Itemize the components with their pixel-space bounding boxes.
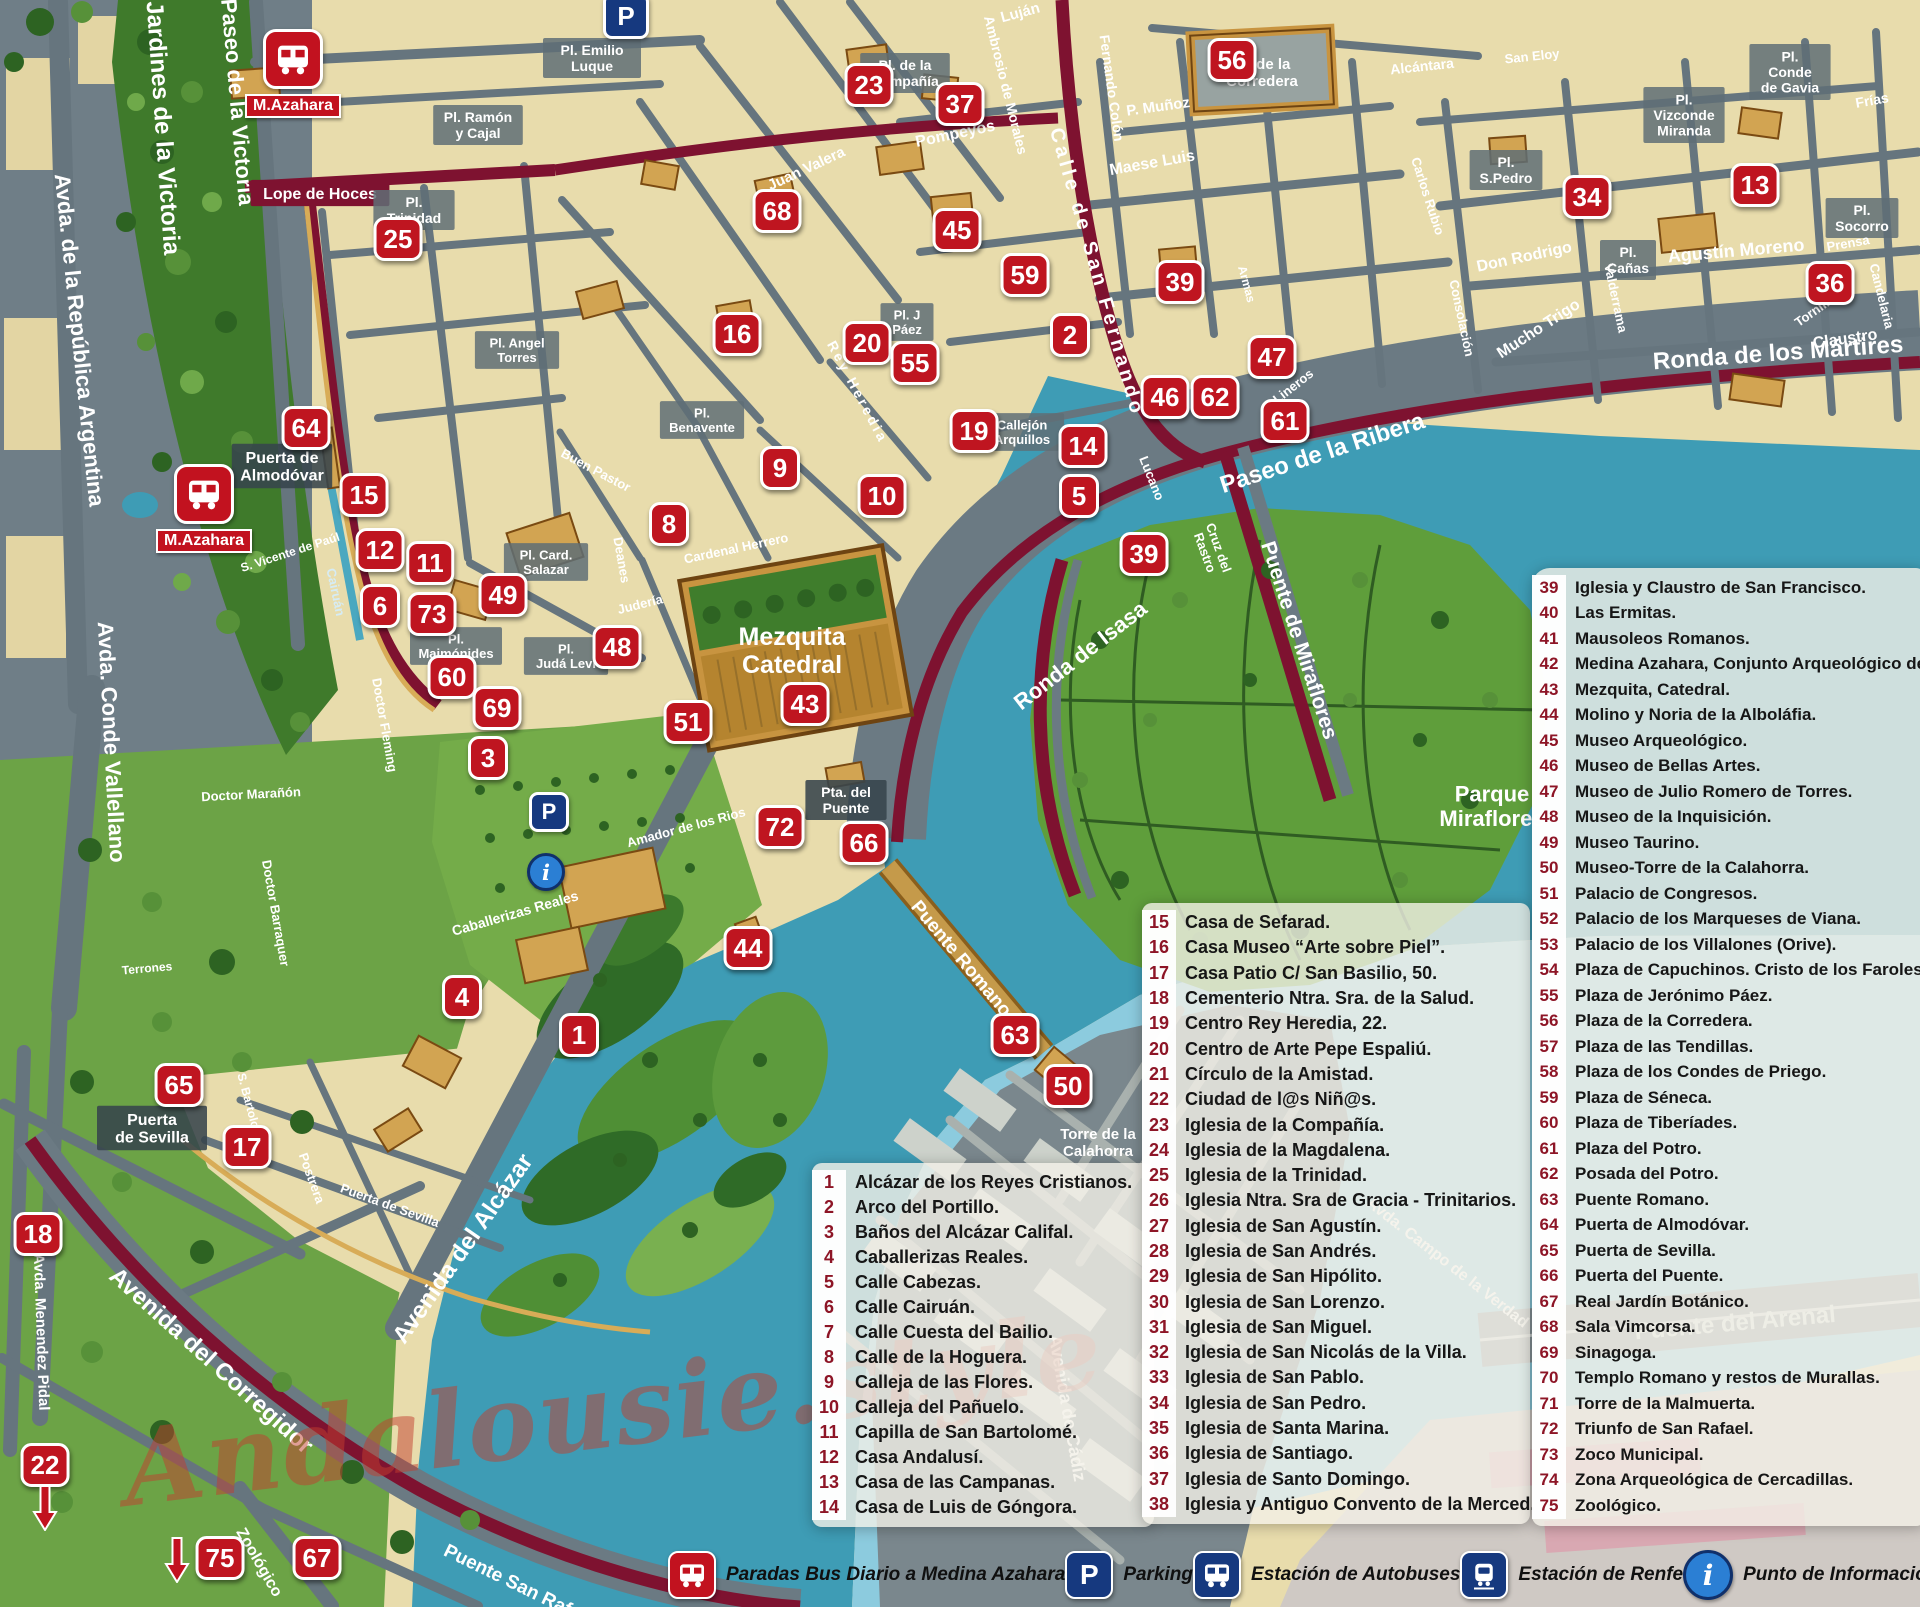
legend-item-label: Calle Cuesta del Bailio.: [846, 1320, 1053, 1345]
legend-item-number: 65: [1532, 1238, 1566, 1264]
legend-item-21: 21 Círculo de la Amistad.: [1142, 1062, 1524, 1087]
legend-item-40: 40 Las Ermitas.: [1532, 601, 1920, 627]
legend-item-label: Iglesia Ntra. Sra de Gracia - Trinitario…: [1176, 1188, 1516, 1213]
street-label: Pl.VizcondeMiranda: [1643, 87, 1724, 143]
legend-item-22: 22 Ciudad de l@s Niñ@s.: [1142, 1087, 1524, 1112]
map-marker-67: 67: [293, 1536, 342, 1580]
svg-text:CallejónArquillos: CallejónArquillos: [994, 417, 1050, 447]
legend-item-label: Sinagoga.: [1566, 1340, 1656, 1366]
legend-item-label: Plaza del Potro.: [1566, 1136, 1702, 1162]
legend-item-18: 18 Cementerio Ntra. Sra. de la Salud.: [1142, 986, 1524, 1011]
legend-item-71: 71 Torre de la Malmuerta.: [1532, 1391, 1920, 1417]
legend-item-number: 14: [812, 1495, 846, 1520]
parking-icon: P: [603, 0, 649, 39]
legend-item-62: 62 Posada del Potro.: [1532, 1162, 1920, 1188]
legend-item-label: Plaza de Jerónimo Páez.: [1566, 983, 1772, 1009]
legend-item-number: 7: [812, 1320, 846, 1345]
legend-item-number: 52: [1532, 907, 1566, 933]
legend-item-57: 57 Plaza de las Tendillas.: [1532, 1034, 1920, 1060]
legend-item-number: 55: [1532, 983, 1566, 1009]
legend-item-68: 68 Sala Vimcorsa.: [1532, 1315, 1920, 1341]
map-marker-61: 61: [1261, 399, 1310, 443]
medina-azahara-bus-stop-icon: M.Azahara: [156, 464, 252, 553]
map-marker-16: 16: [713, 312, 762, 356]
legend-item-label: Iglesia de San Miguel.: [1176, 1315, 1372, 1340]
legend-item-label: Museo Taurino.: [1566, 830, 1699, 856]
legend-item-label: Casa Patio C/ San Basilio, 50.: [1176, 961, 1437, 986]
legend-item-label: Triunfo de San Rafael.: [1566, 1417, 1754, 1443]
svg-text:Pl. Card.Salazar: Pl. Card.Salazar: [520, 547, 573, 577]
map-marker-1: 1: [559, 1013, 599, 1057]
legend-item-label: Casa Andalusí.: [846, 1445, 983, 1470]
map-key-label: Paradas Bus Diario a Medina Azahara: [726, 1564, 1065, 1586]
legend-item-29: 29 Iglesia de San Hipólito.: [1142, 1264, 1524, 1289]
map-marker-64: 64: [282, 406, 331, 450]
map-marker-39: 39: [1156, 260, 1205, 304]
legend-item-number: 45: [1532, 728, 1566, 754]
legend-item-label: Las Ermitas.: [1566, 601, 1676, 627]
tourist-info-icon: i: [527, 853, 565, 891]
legend-item-label: Zona Arqueológica de Cercadillas.: [1566, 1468, 1853, 1494]
legend-item-label: Iglesia de Santiago.: [1176, 1441, 1353, 1466]
legend-item-label: Calle Cabezas.: [846, 1270, 981, 1295]
legend-item-label: Calleja del Pañuelo.: [846, 1395, 1024, 1420]
legend-item-label: Museo de Bellas Artes.: [1566, 754, 1761, 780]
bus-icon: [263, 29, 323, 89]
legend-item-label: Casa de Sefarad.: [1176, 910, 1330, 935]
street-label: Pl.Condede Gavia: [1749, 44, 1830, 100]
legend-item-label: Iglesia de San Agustín.: [1176, 1214, 1381, 1239]
legend-item-number: 4: [812, 1245, 846, 1270]
legend-item-number: 72: [1532, 1417, 1566, 1443]
map-marker-75: 75: [196, 1536, 245, 1580]
map-marker-69: 69: [473, 686, 522, 730]
map-marker-56: 56: [1208, 38, 1257, 82]
legend-item-label: Museo-Torre de la Calahorra.: [1566, 856, 1809, 882]
legend-item-number: 59: [1532, 1085, 1566, 1111]
legend-item-label: Casa de las Campanas.: [846, 1470, 1055, 1495]
legend-item-45: 45 Museo Arqueológico.: [1532, 728, 1920, 754]
street-label: MezquitaCatedral: [739, 623, 847, 679]
legend-item-label: Plaza de Séneca.: [1566, 1085, 1712, 1111]
legend-item-label: Posada del Potro.: [1566, 1162, 1719, 1188]
legend-item-37: 37 Iglesia de Santo Domingo.: [1142, 1467, 1524, 1492]
legend-item-72: 72 Triunfo de San Rafael.: [1532, 1417, 1920, 1443]
map-marker-66: 66: [840, 821, 889, 865]
legend-item-number: 34: [1142, 1391, 1176, 1416]
legend-item-28: 28 Iglesia de San Andrés.: [1142, 1239, 1524, 1264]
map-marker-59: 59: [1001, 253, 1050, 297]
legend-item-20: 20 Centro de Arte Pepe Espaliú.: [1142, 1036, 1524, 1061]
map-marker-8: 8: [649, 502, 689, 546]
legend-item-number: 42: [1532, 652, 1566, 678]
svg-text:MezquitaCatedral: MezquitaCatedral: [739, 623, 847, 679]
legend-item-label: Museo de Julio Romero de Torres.: [1566, 779, 1852, 805]
legend-item-number: 46: [1532, 754, 1566, 780]
legend-item-label: Plaza de Tiberíades.: [1566, 1111, 1737, 1137]
legend-item-14: 14 Casa de Luis de Góngora.: [812, 1495, 1148, 1520]
svg-text:Lope de Hoces: Lope de Hoces: [263, 186, 377, 203]
legend-item-label: Torre de la Malmuerta.: [1566, 1391, 1755, 1417]
legend-item-number: 31: [1142, 1315, 1176, 1340]
legend-item-label: Iglesia de San Pedro.: [1176, 1391, 1366, 1416]
map-key-label: Punto de Información Turística: [1743, 1564, 1920, 1586]
legend-item-number: 28: [1142, 1239, 1176, 1264]
map-marker-10: 10: [858, 474, 907, 518]
legend-panel-1: 1 Alcázar de los Reyes Cristianos.2 Arco…: [812, 1163, 1154, 1527]
legend-item-label: Calle Cairuán.: [846, 1295, 975, 1320]
legend-item-number: 63: [1532, 1187, 1566, 1213]
medina-azahara-bus-stop-icon: M.Azahara: [245, 29, 341, 118]
legend-item-12: 12 Casa Andalusí.: [812, 1445, 1148, 1470]
legend-item-34: 34 Iglesia de San Pedro.: [1142, 1391, 1524, 1416]
legend-item-label: Medina Azahara, Conjunto Arqueológico de…: [1566, 652, 1920, 678]
legend-item-label: Mezquita, Catedral.: [1566, 677, 1730, 703]
legend-item-label: Palacio de los Marqueses de Viana.: [1566, 907, 1861, 933]
map-marker-65: 65: [155, 1063, 204, 1107]
legend-item-31: 31 Iglesia de San Miguel.: [1142, 1315, 1524, 1340]
legend-item-label: Palacio de Congresos.: [1566, 881, 1757, 907]
legend-item-label: Templo Romano y restos de Murallas.: [1566, 1366, 1880, 1392]
legend-item-number: 3: [812, 1220, 846, 1245]
street-label: Lope de Hoces: [251, 180, 390, 206]
legend-item-number: 36: [1142, 1441, 1176, 1466]
legend-item-number: 47: [1532, 779, 1566, 805]
legend-item-number: 66: [1532, 1264, 1566, 1290]
legend-item-number: 51: [1532, 881, 1566, 907]
legend-item-number: 13: [812, 1470, 846, 1495]
map-marker-55: 55: [891, 341, 940, 385]
map-key-item: PParking: [1065, 1551, 1193, 1599]
map-marker-72: 72: [756, 805, 805, 849]
map-marker-19: 19: [950, 409, 999, 453]
legend-item-label: Iglesia y Claustro de San Francisco.: [1566, 575, 1866, 601]
legend-item-number: 23: [1142, 1112, 1176, 1137]
legend-item-label: Real Jardín Botánico.: [1566, 1289, 1749, 1315]
map-marker-22: 22: [21, 1443, 70, 1487]
map-marker-51: 51: [664, 700, 713, 744]
legend-item-label: Iglesia de San Hipólito.: [1176, 1264, 1382, 1289]
legend-item-number: 8: [812, 1345, 846, 1370]
legend-item-label: Baños del Alcázar Califal.: [846, 1220, 1073, 1245]
legend-item-32: 32 Iglesia de San Nicolás de la Villa.: [1142, 1340, 1524, 1365]
legend-item-number: 24: [1142, 1138, 1176, 1163]
map-marker-63: 63: [991, 1013, 1040, 1057]
legend-item-number: 20: [1142, 1036, 1176, 1061]
map-marker-12: 12: [356, 528, 405, 572]
legend-item-label: Plaza de las Tendillas.: [1566, 1034, 1753, 1060]
legend-item-label: Puerta de Sevilla.: [1566, 1238, 1716, 1264]
legend-item-label: Ciudad de l@s Niñ@s.: [1176, 1087, 1376, 1112]
legend-item-75: 75 Zoológico.: [1532, 1493, 1920, 1519]
legend-item-7: 7 Calle Cuesta del Bailio.: [812, 1320, 1148, 1345]
svg-text:Pl. JPáez: Pl. JPáez: [892, 307, 922, 337]
legend-panel-3: 39 Iglesia y Claustro de San Francisco.4…: [1532, 568, 1920, 1526]
legend-item-number: 32: [1142, 1340, 1176, 1365]
legend-item-label: Molino y Noria de la Alboláfia.: [1566, 703, 1816, 729]
map-marker-14: 14: [1059, 424, 1108, 468]
legend-item-3: 3 Baños del Alcázar Califal.: [812, 1220, 1148, 1245]
legend-item-9: 9 Calleja de las Flores.: [812, 1370, 1148, 1395]
legend-item-label: Mausoleos Romanos.: [1566, 626, 1750, 652]
legend-item-number: 15: [1142, 910, 1176, 935]
map-key-item: iPunto de Información Turística: [1683, 1550, 1920, 1600]
legend-item-number: 35: [1142, 1416, 1176, 1441]
legend-item-label: Iglesia de la Magdalena.: [1176, 1138, 1390, 1163]
legend-item-number: 43: [1532, 677, 1566, 703]
map-marker-45: 45: [933, 208, 982, 252]
map-marker-47: 47: [1248, 335, 1297, 379]
map-marker-68: 68: [753, 189, 802, 233]
map-marker-25: 25: [374, 217, 423, 261]
legend-item-label: Centro Rey Heredia, 22.: [1176, 1011, 1387, 1036]
legend-item-39: 39 Iglesia y Claustro de San Francisco.: [1532, 575, 1920, 601]
legend-item-33: 33 Iglesia de San Pablo.: [1142, 1365, 1524, 1390]
bus-stop-label: M.Azahara: [245, 94, 341, 118]
map-marker-13: 13: [1731, 163, 1780, 207]
legend-item-23: 23 Iglesia de la Compañía.: [1142, 1112, 1524, 1137]
legend-item-24: 24 Iglesia de la Magdalena.: [1142, 1138, 1524, 1163]
legend-item-number: 11: [812, 1420, 846, 1445]
legend-item-number: 5: [812, 1270, 846, 1295]
legend-item-6: 6 Calle Cairuán.: [812, 1295, 1148, 1320]
legend-item-30: 30 Iglesia de San Lorenzo.: [1142, 1289, 1524, 1314]
legend-item-60: 60 Plaza de Tiberíades.: [1532, 1111, 1920, 1137]
map-marker-44: 44: [724, 926, 773, 970]
legend-item-36: 36 Iglesia de Santiago.: [1142, 1441, 1524, 1466]
legend-item-label: Iglesia de la Compañía.: [1176, 1112, 1384, 1137]
legend-item-44: 44 Molino y Noria de la Alboláfia.: [1532, 703, 1920, 729]
legend-item-13: 13 Casa de las Campanas.: [812, 1470, 1148, 1495]
legend-item-label: Calle de la Hoguera.: [846, 1345, 1027, 1370]
medina-azahara-bus-icon: [668, 1551, 716, 1599]
legend-item-19: 19 Centro Rey Heredia, 22.: [1142, 1011, 1524, 1036]
legend-item-25: 25 Iglesia de la Trinidad.: [1142, 1163, 1524, 1188]
legend-item-label: Iglesia de San Nicolás de la Villa.: [1176, 1340, 1467, 1365]
map-marker-17: 17: [223, 1125, 272, 1169]
legend-item-label: Palacio de los Villalones (Orive).: [1566, 932, 1836, 958]
legend-item-59: 59 Plaza de Séneca.: [1532, 1085, 1920, 1111]
map-marker-23: 23: [845, 63, 894, 107]
map-marker-43: 43: [781, 682, 830, 726]
bus-stop-label: M.Azahara: [156, 529, 252, 553]
legend-item-label: Iglesia de San Lorenzo.: [1176, 1289, 1385, 1314]
legend-item-label: Iglesia de San Pablo.: [1176, 1365, 1364, 1390]
map-marker-48: 48: [593, 625, 642, 669]
legend-item-label: Plaza de Capuchinos. Cristo de los Farol…: [1566, 958, 1920, 984]
legend-item-label: Capilla de San Bartolomé.: [846, 1420, 1077, 1445]
legend-item-label: Casa de Luis de Góngora.: [846, 1495, 1077, 1520]
legend-item-50: 50 Museo-Torre de la Calahorra.: [1532, 856, 1920, 882]
legend-item-number: 26: [1142, 1188, 1176, 1213]
legend-item-number: 21: [1142, 1062, 1176, 1087]
legend-item-number: 56: [1532, 1009, 1566, 1035]
legend-item-number: 39: [1532, 575, 1566, 601]
legend-item-number: 64: [1532, 1213, 1566, 1239]
cordoba-tourist-map: Avda. de la República ArgentinaJardines …: [0, 0, 1920, 1607]
legend-item-number: 62: [1532, 1162, 1566, 1188]
map-marker-5: 5: [1059, 474, 1099, 518]
legend-item-label: Zoológico.: [1566, 1493, 1661, 1519]
bus-icon: [174, 464, 234, 524]
legend-item-16: 16 Casa Museo “Arte sobre Piel”.: [1142, 935, 1524, 960]
legend-item-label: Plaza de la Corredera.: [1566, 1009, 1753, 1035]
legend-item-number: 1: [812, 1170, 846, 1195]
legend-item-number: 58: [1532, 1060, 1566, 1086]
legend-item-number: 19: [1142, 1011, 1176, 1036]
red-arrow-icon: [32, 1485, 58, 1531]
legend-item-number: 29: [1142, 1264, 1176, 1289]
legend-item-69: 69 Sinagoga.: [1532, 1340, 1920, 1366]
legend-item-number: 73: [1532, 1442, 1566, 1468]
legend-panel-2: 15 Casa de Sefarad.16 Casa Museo “Arte s…: [1142, 903, 1530, 1524]
legend-item-73: 73 Zoco Municipal.: [1532, 1442, 1920, 1468]
legend-item-number: 68: [1532, 1315, 1566, 1341]
bus-station-icon: [1193, 1551, 1241, 1599]
legend-item-number: 10: [812, 1395, 846, 1420]
map-marker-6: 6: [360, 584, 400, 628]
map-marker-62: 62: [1191, 375, 1240, 419]
street-label: Pl. EmilioLuque: [543, 38, 641, 78]
map-marker-50: 50: [1044, 1064, 1093, 1108]
legend-item-2: 2 Arco del Portillo.: [812, 1195, 1148, 1220]
legend-item-label: Alcázar de los Reyes Cristianos.: [846, 1170, 1132, 1195]
svg-text:Puerta deAlmodóvar: Puerta deAlmodóvar: [240, 450, 324, 485]
legend-item-number: 48: [1532, 805, 1566, 831]
map-key-item: Estación de Renfe: [1460, 1551, 1683, 1599]
map-marker-20: 20: [843, 321, 892, 365]
map-marker-34: 34: [1563, 175, 1612, 219]
legend-item-label: Cementerio Ntra. Sra. de la Salud.: [1176, 986, 1474, 1011]
legend-item-number: 40: [1532, 601, 1566, 627]
legend-item-48: 48 Museo de la Inquisición.: [1532, 805, 1920, 831]
red-arrow-icon: [164, 1537, 190, 1583]
legend-item-56: 56 Plaza de la Corredera.: [1532, 1009, 1920, 1035]
map-marker-49: 49: [479, 573, 528, 617]
legend-item-65: 65 Puerta de Sevilla.: [1532, 1238, 1920, 1264]
street-label: Pta. delPuente: [805, 780, 886, 820]
legend-item-number: 67: [1532, 1289, 1566, 1315]
map-marker-4: 4: [442, 975, 482, 1019]
street-label: Pl.Socorro: [1826, 198, 1899, 238]
map-marker-2: 2: [1050, 313, 1090, 357]
legend-item-1: 1 Alcázar de los Reyes Cristianos.: [812, 1170, 1148, 1195]
street-label: Puertade Sevilla: [97, 1106, 207, 1150]
legend-item-label: Puerta del Puente.: [1566, 1264, 1723, 1290]
legend-item-53: 53 Palacio de los Villalones (Orive).: [1532, 932, 1920, 958]
legend-item-label: Iglesia de Santo Domingo.: [1176, 1467, 1410, 1492]
map-key-item: Estación de Autobuses: [1193, 1551, 1460, 1599]
legend-item-number: 25: [1142, 1163, 1176, 1188]
map-marker-3: 3: [468, 736, 508, 780]
legend-item-17: 17 Casa Patio C/ San Basilio, 50.: [1142, 961, 1524, 986]
legend-item-number: 54: [1532, 958, 1566, 984]
parking-icon: P: [529, 792, 569, 832]
svg-text:Torre de laCalahorra: Torre de laCalahorra: [1060, 1126, 1136, 1160]
legend-item-number: 44: [1532, 703, 1566, 729]
legend-item-15: 15 Casa de Sefarad.: [1142, 910, 1524, 935]
legend-item-4: 4 Caballerizas Reales.: [812, 1245, 1148, 1270]
legend-item-label: Zoco Municipal.: [1566, 1442, 1703, 1468]
svg-text:Pl. AngelTorres: Pl. AngelTorres: [489, 335, 544, 365]
legend-item-58: 58 Plaza de los Condes de Priego.: [1532, 1060, 1920, 1086]
legend-item-number: 74: [1532, 1468, 1566, 1494]
legend-item-number: 18: [1142, 986, 1176, 1011]
legend-item-label: Puerta de Almodóvar.: [1566, 1213, 1749, 1239]
legend-item-label: Puente Romano.: [1566, 1187, 1709, 1213]
map-key-label: Parking: [1123, 1564, 1193, 1586]
legend-item-label: Iglesia de la Trinidad.: [1176, 1163, 1367, 1188]
legend-item-35: 35 Iglesia de Santa Marina.: [1142, 1416, 1524, 1441]
legend-item-number: 12: [812, 1445, 846, 1470]
legend-item-number: 70: [1532, 1366, 1566, 1392]
train-station-icon: [1460, 1551, 1508, 1599]
map-marker-11: 11: [406, 541, 454, 585]
legend-item-number: 30: [1142, 1289, 1176, 1314]
legend-item-number: 71: [1532, 1391, 1566, 1417]
legend-item-number: 16: [1142, 935, 1176, 960]
street-label: Pl.Benavente: [660, 401, 744, 439]
legend-item-51: 51 Palacio de Congresos.: [1532, 881, 1920, 907]
legend-item-label: Círculo de la Amistad.: [1176, 1062, 1373, 1087]
svg-text:Pta. delPuente: Pta. delPuente: [821, 784, 871, 816]
legend-item-label: Calleja de las Flores.: [846, 1370, 1033, 1395]
tourist-info-key-icon: i: [1683, 1550, 1733, 1600]
svg-text:ParqueMiraflores: ParqueMiraflores: [1439, 782, 1544, 832]
legend-item-8: 8 Calle de la Hoguera.: [812, 1345, 1148, 1370]
legend-item-number: 2: [812, 1195, 846, 1220]
street-label: Pl. Ramóny Cajal: [433, 105, 523, 145]
legend-item-42: 42 Medina Azahara, Conjunto Arqueológico…: [1532, 652, 1920, 678]
legend-item-10: 10 Calleja del Pañuelo.: [812, 1395, 1148, 1420]
legend-item-number: 41: [1532, 626, 1566, 652]
legend-item-38: 38 Iglesia y Antiguo Convento de la Merc…: [1142, 1492, 1524, 1517]
street-label: ParqueMiraflores: [1439, 782, 1544, 832]
map-marker-60: 60: [428, 655, 477, 699]
legend-item-number: 38: [1142, 1492, 1176, 1517]
legend-item-number: 53: [1532, 932, 1566, 958]
legend-item-47: 47 Museo de Julio Romero de Torres.: [1532, 779, 1920, 805]
legend-item-61: 61 Plaza del Potro.: [1532, 1136, 1920, 1162]
legend-item-46: 46 Museo de Bellas Artes.: [1532, 754, 1920, 780]
legend-item-27: 27 Iglesia de San Agustín.: [1142, 1214, 1524, 1239]
legend-item-64: 64 Puerta de Almodóvar.: [1532, 1213, 1920, 1239]
legend-item-number: 49: [1532, 830, 1566, 856]
legend-item-label: Centro de Arte Pepe Espaliú.: [1176, 1036, 1431, 1061]
parking-key-icon: P: [1065, 1551, 1113, 1599]
legend-item-label: Iglesia de Santa Marina.: [1176, 1416, 1389, 1441]
legend-item-74: 74 Zona Arqueológica de Cercadillas.: [1532, 1468, 1920, 1494]
legend-item-label: Plaza de los Condes de Priego.: [1566, 1060, 1826, 1086]
legend-item-26: 26 Iglesia Ntra. Sra de Gracia - Trinita…: [1142, 1188, 1524, 1213]
map-marker-36: 36: [1806, 261, 1855, 305]
map-marker-15: 15: [340, 473, 389, 517]
legend-item-label: Caballerizas Reales.: [846, 1245, 1028, 1270]
legend-item-label: Museo de la Inquisición.: [1566, 805, 1771, 831]
map-marker-9: 9: [760, 446, 800, 490]
legend-item-41: 41 Mausoleos Romanos.: [1532, 626, 1920, 652]
legend-item-55: 55 Plaza de Jerónimo Páez.: [1532, 983, 1920, 1009]
legend-item-54: 54 Plaza de Capuchinos. Cristo de los Fa…: [1532, 958, 1920, 984]
street-label: Pl.S.Pedro: [1470, 150, 1543, 190]
legend-item-number: 33: [1142, 1365, 1176, 1390]
legend-item-number: 17: [1142, 961, 1176, 986]
legend-item-number: 75: [1532, 1493, 1566, 1519]
map-marker-18: 18: [14, 1212, 63, 1256]
legend-item-67: 67 Real Jardín Botánico.: [1532, 1289, 1920, 1315]
map-marker-39: 39: [1120, 532, 1169, 576]
legend-item-number: 9: [812, 1370, 846, 1395]
